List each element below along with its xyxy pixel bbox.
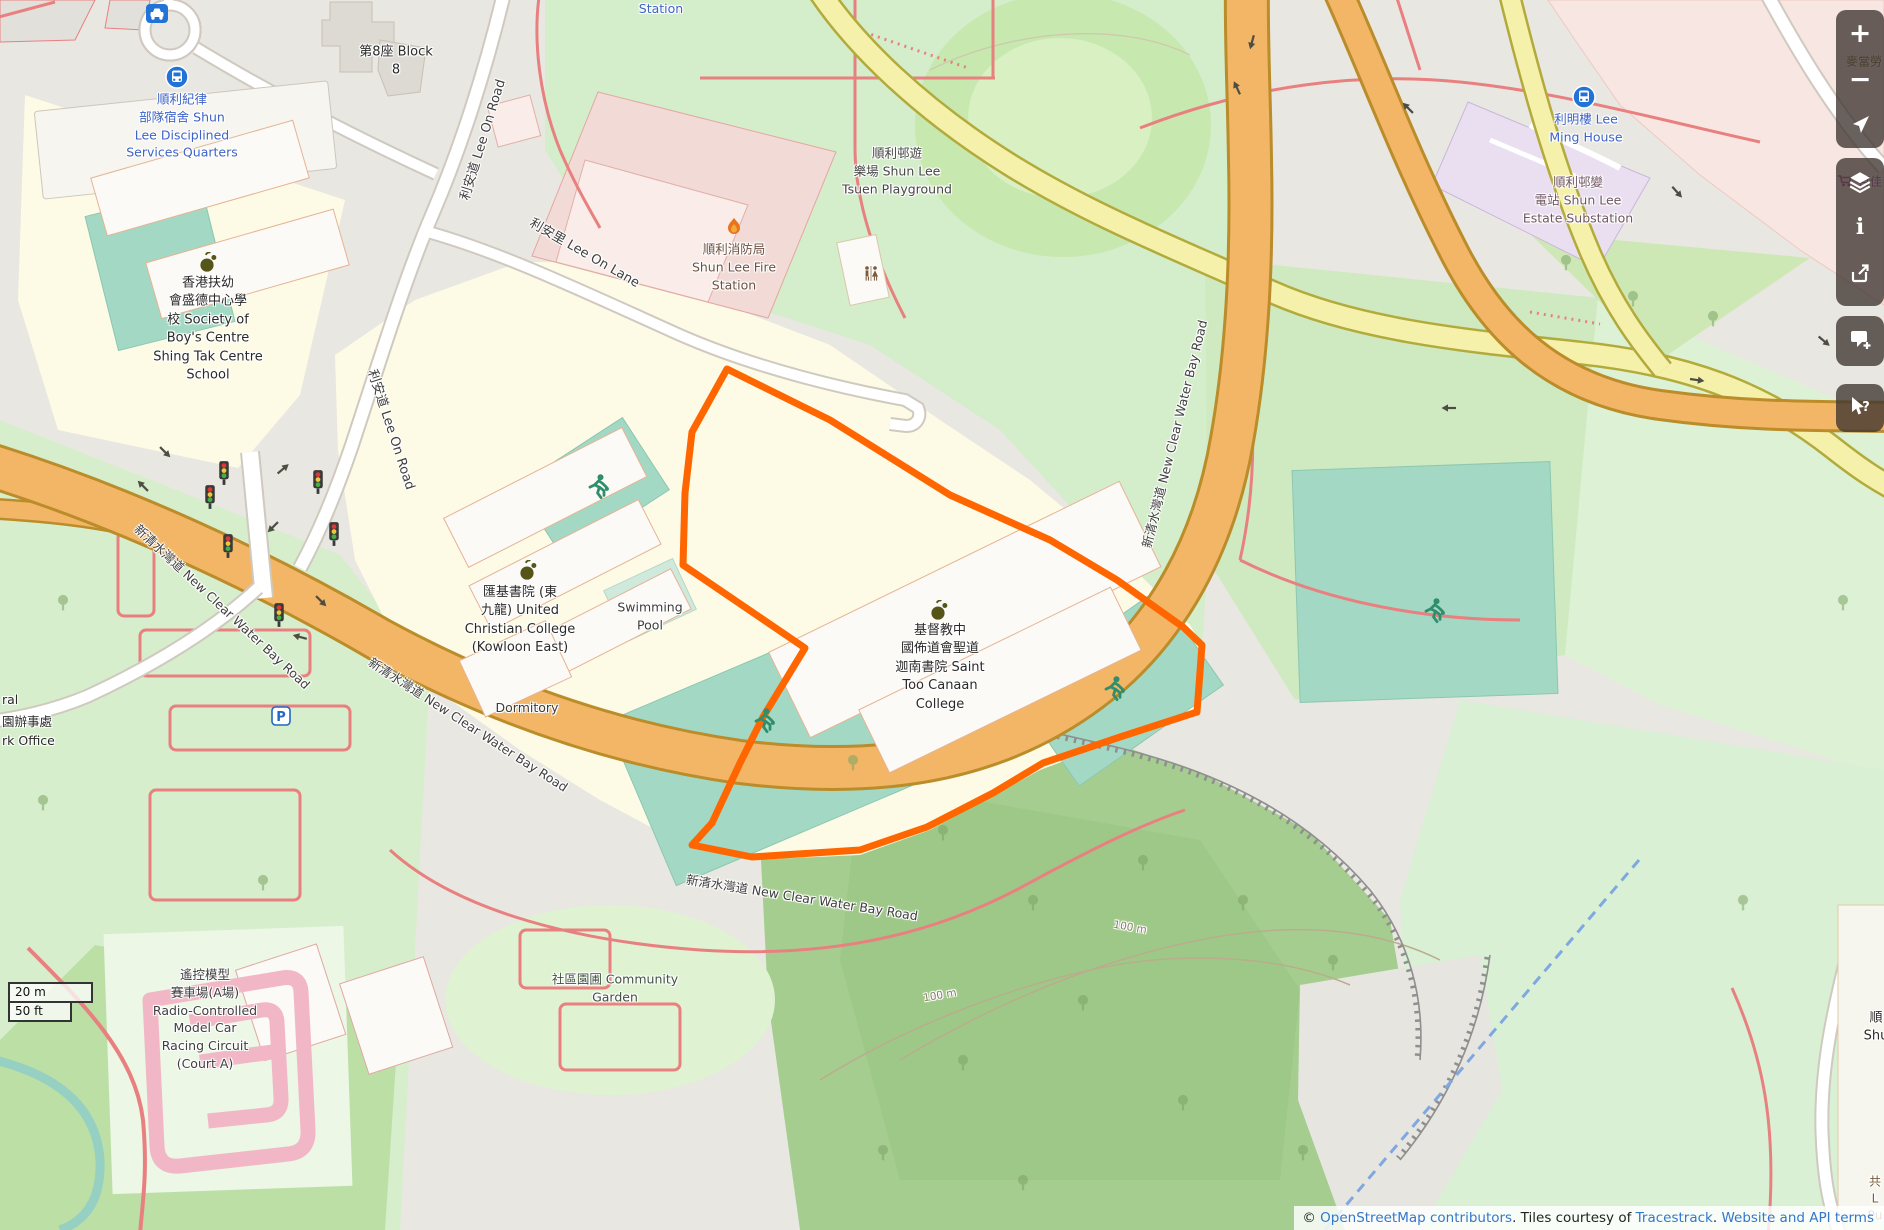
layers-icon — [1848, 169, 1872, 193]
label-quarters: 順利紀律 部隊宿舍 Shun Lee Disciplined Services … — [126, 91, 238, 162]
tracestrack-link[interactable]: Tracestrack — [1636, 1210, 1713, 1226]
label-edge-shun: 順 Shu — [1846, 1010, 1884, 1047]
zoom-out-icon: − — [1849, 64, 1872, 95]
query-features-icon: ? — [1847, 394, 1873, 420]
label-substation: 順利邨變 電站 Shun Lee Estate Substation — [1523, 173, 1633, 226]
label-edge-office-en: rk Office — [2, 732, 55, 750]
map-canvas[interactable]: P Station 順利紀律 部隊宿舍 Shun Lee Disciplined… — [0, 0, 1884, 1230]
label-playground: 順利邨遊 樂場 Shun Lee Tsuen Playground — [842, 144, 952, 197]
attribution-bar: © OpenStreetMap contributors. Tiles cour… — [1294, 1206, 1884, 1230]
label-lee-ming-house: 利明樓 Lee Ming House — [1549, 110, 1622, 146]
label-edge-ral: ral — [2, 691, 18, 709]
query-control-group: ? — [1836, 384, 1884, 432]
scale-metric: 20 m — [8, 982, 93, 1003]
scale-imperial: 50 ft — [8, 1001, 72, 1022]
label-racing-circuit: 遙控模型 賽車場(A場) Radio-Controlled Model Car … — [153, 966, 257, 1073]
label-swimming-pool: Swimming Pool — [617, 598, 682, 634]
car-rental-icon — [146, 4, 168, 23]
pitch — [1292, 462, 1558, 703]
tools-control-group: i — [1836, 158, 1884, 306]
svg-text:?: ? — [1862, 400, 1870, 415]
add-note-button[interactable] — [1836, 316, 1884, 362]
label-canaan-college: 基督教中 國佈道會聖道 迦南書院 Saint Too Canaan Colleg… — [895, 622, 984, 714]
svg-text:P: P — [276, 710, 286, 725]
label-station-partial: Station — [639, 0, 683, 18]
share-button[interactable] — [1836, 250, 1884, 296]
label-shing-tak-school: 香港扶幼 會盛德中心學 校 Society of Boy's Centre Sh… — [153, 275, 263, 386]
label-community-garden: 社區園圃 Community Garden — [552, 970, 678, 1006]
layers-button[interactable] — [1836, 158, 1884, 204]
zoom-out-button[interactable]: − — [1836, 56, 1884, 102]
parking-icon: P — [272, 707, 290, 725]
note-control-group — [1836, 316, 1884, 366]
add-note-icon — [1848, 327, 1872, 351]
zoom-control-group: + − — [1836, 10, 1884, 148]
query-features-button[interactable]: ? — [1836, 384, 1884, 430]
label-dormitory: Dormitory — [496, 699, 559, 717]
label-ucc: 匯基書院 (東 九龍) United Christian College (Ko… — [465, 584, 576, 658]
bus-stop-icon — [1573, 86, 1595, 108]
terms-link[interactable]: Website and API terms — [1721, 1210, 1874, 1226]
info-button[interactable]: i — [1836, 204, 1884, 250]
osm-contributors-link[interactable]: OpenStreetMap contributors — [1320, 1210, 1512, 1226]
info-icon: i — [1856, 214, 1864, 240]
bus-stop-icon — [166, 66, 188, 88]
locate-icon — [1849, 114, 1871, 136]
zoom-in-button[interactable]: + — [1836, 10, 1884, 56]
scale-bar: 20 m 50 ft — [8, 982, 93, 1022]
share-icon — [1849, 262, 1871, 284]
locate-button[interactable] — [1836, 102, 1884, 148]
label-edge-office-zh: 園辦事處 — [2, 713, 52, 731]
label-fire-station: 順利消防局 Shun Lee Fire Station — [692, 240, 776, 293]
label-block8: 第8座 Block 8 — [359, 44, 433, 81]
zoom-in-icon: + — [1849, 18, 1872, 49]
copyright-symbol: © — [1302, 1210, 1320, 1226]
attribution-middle: . Tiles courtesy of — [1512, 1210, 1636, 1226]
